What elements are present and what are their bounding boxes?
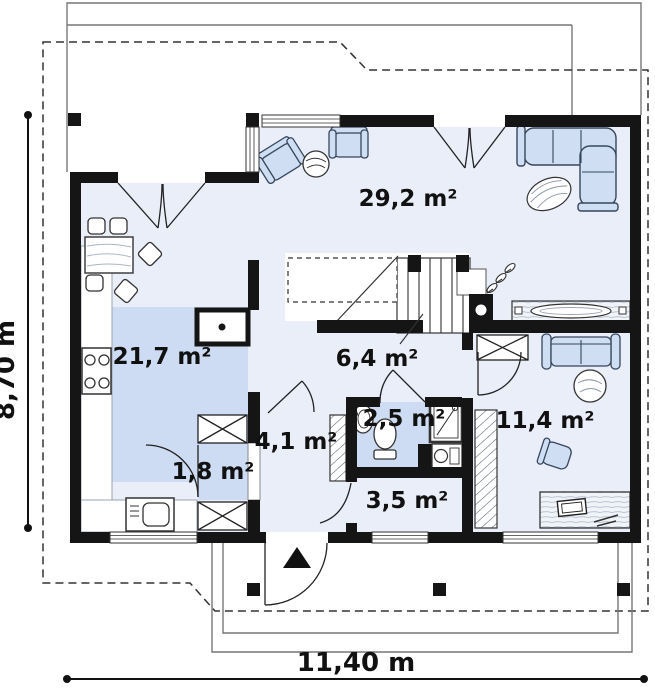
- bedroom-label: 11,4 m²: [496, 408, 595, 434]
- dimension-height: 8,70 m: [0, 111, 32, 532]
- living-room-label: 29,2 m²: [359, 186, 458, 212]
- stove-icon: [82, 348, 111, 394]
- entry-hall-label: 4,1 m²: [255, 429, 338, 455]
- window: [372, 532, 428, 543]
- terrace-column: [68, 113, 81, 126]
- window: [503, 532, 598, 543]
- porch-column: [617, 583, 630, 596]
- window: [246, 127, 259, 172]
- window: [262, 115, 340, 127]
- chair: [88, 218, 105, 234]
- hall-upper-label: 6,4 m²: [336, 346, 419, 372]
- tv-sideboard: [512, 301, 630, 322]
- height-dimension-label: 8,70 m: [0, 320, 21, 420]
- floor-plan-page: 29,2 m² 21,7 m² 6,4 m² 4,1 m² 2,5 m² 1,8…: [0, 0, 655, 688]
- entrance-arrow-icon: [283, 547, 311, 568]
- corridor-label: 3,5 m²: [366, 488, 449, 514]
- chair: [110, 218, 127, 234]
- washer-icon: [418, 444, 462, 468]
- chair: [86, 275, 103, 291]
- width-dimension-label: 11,40 m: [297, 648, 415, 678]
- bathroom-label: 2,5 m²: [363, 406, 446, 432]
- pantry-label: 1,8 m²: [172, 459, 255, 485]
- stairs-landing-dashed: [288, 258, 397, 302]
- porch-column: [247, 583, 260, 596]
- floor-plan-drawing: 29,2 m² 21,7 m² 6,4 m² 4,1 m² 2,5 m² 1,8…: [0, 0, 655, 688]
- sink-icon: [126, 498, 174, 531]
- kitchen-label: 21,7 m²: [113, 344, 212, 370]
- porch-column: [433, 583, 446, 596]
- closet-dot: [219, 324, 226, 331]
- dimension-width: 11,40 m: [63, 648, 648, 683]
- window: [110, 532, 197, 543]
